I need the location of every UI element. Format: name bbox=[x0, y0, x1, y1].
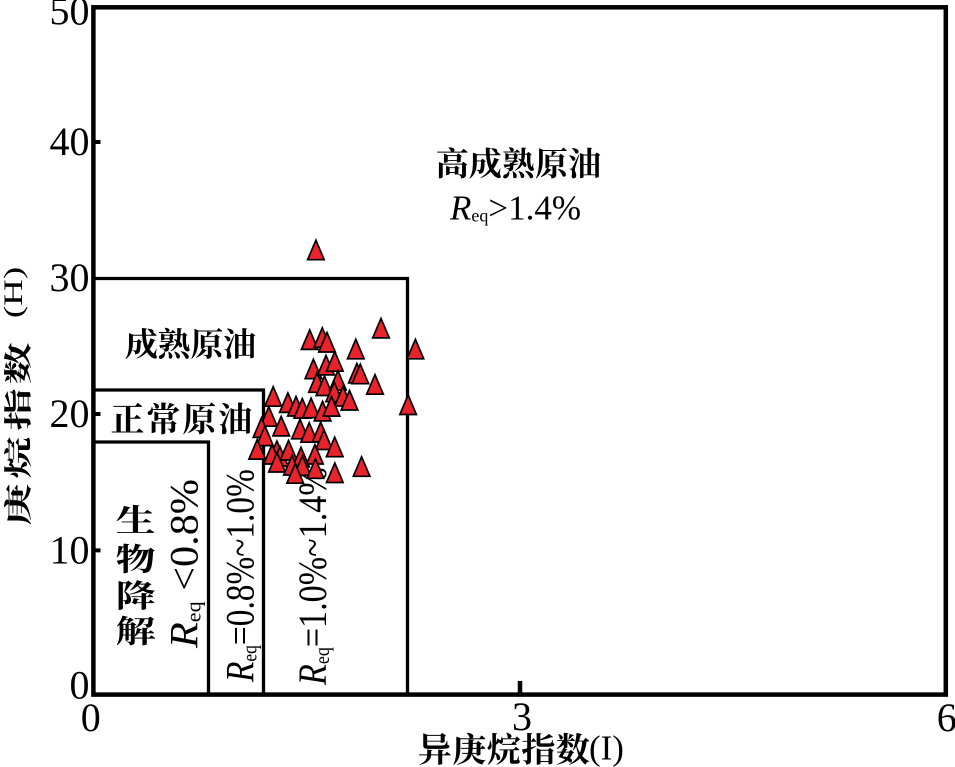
svg-text:Req <0.8%: Req <0.8% bbox=[162, 479, 207, 649]
svg-text:(H): (H) bbox=[0, 267, 28, 318]
svg-text:6: 6 bbox=[937, 695, 955, 740]
svg-text:0: 0 bbox=[81, 695, 101, 740]
svg-text:(I): (I) bbox=[589, 729, 624, 767]
svg-text:30: 30 bbox=[50, 255, 90, 300]
svg-text:10: 10 bbox=[50, 528, 90, 573]
svg-text:Req>1.4%: Req>1.4% bbox=[449, 189, 581, 228]
svg-text:20: 20 bbox=[50, 391, 90, 436]
svg-text:50: 50 bbox=[50, 0, 90, 34]
svg-text:3: 3 bbox=[512, 694, 532, 739]
svg-text:40: 40 bbox=[50, 119, 90, 164]
